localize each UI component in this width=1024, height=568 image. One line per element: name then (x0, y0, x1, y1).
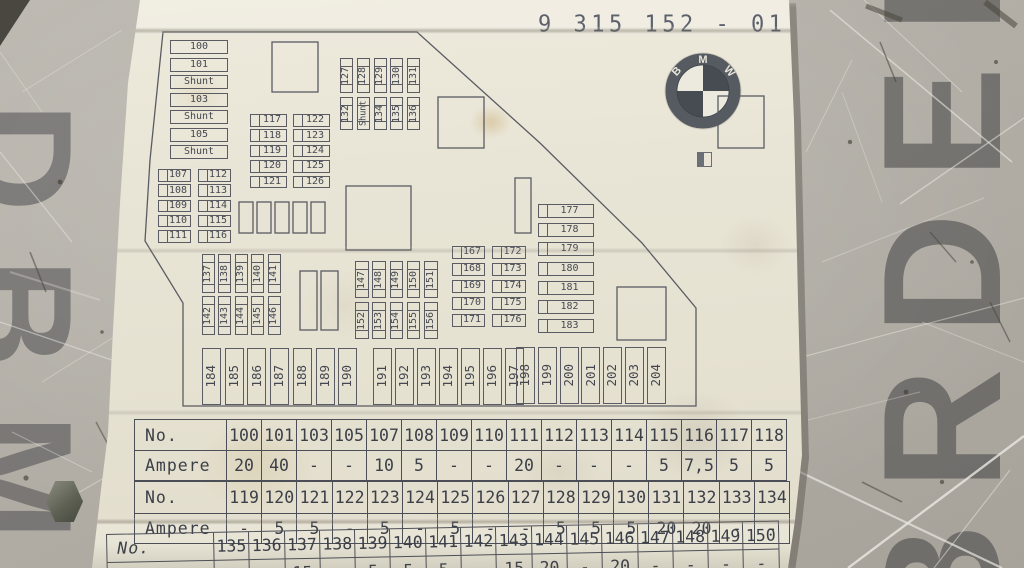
fuse-label: 137 (204, 264, 214, 282)
fuse-subcell (391, 289, 403, 297)
fuse-no-cell: 148 (672, 523, 708, 551)
fuse-label: 146 (269, 306, 279, 324)
fuse-no-cell: 111 (506, 420, 541, 450)
fuse-box: 195 (461, 348, 480, 405)
fuse-subcell (269, 297, 280, 305)
fuse-box: 196 (483, 348, 502, 405)
fuse-subcell (453, 281, 462, 292)
fuse-subcell (252, 326, 263, 334)
fuse-subcell (252, 297, 263, 305)
fuse-box: 136 (407, 97, 420, 130)
fuse-label: 203 (628, 364, 641, 387)
fuse-subcell (453, 264, 462, 275)
fuse-box: 146 (268, 296, 281, 335)
fuse-box: 141 (268, 254, 281, 293)
fuse-subcell (159, 185, 168, 196)
fuse-box: 126 (293, 176, 330, 189)
ampere-cell: 5 (646, 450, 681, 480)
fuse-box: 191 (373, 348, 392, 405)
fuse-label: 142 (204, 306, 214, 324)
fuse-box: 192 (395, 348, 414, 405)
fuse-subcell (159, 216, 168, 227)
fuse-label: 191 (376, 365, 389, 388)
fuse-subcell (294, 115, 303, 126)
fuse-subcell (294, 146, 303, 157)
fuse-subcell (199, 170, 208, 181)
fuse-label: 190 (341, 365, 354, 388)
fuse-label: 127 (342, 66, 352, 84)
fuse-label: 202 (606, 364, 619, 387)
no-row-header: No. (107, 533, 214, 562)
fuse-subcell (493, 298, 502, 309)
ampere-cell: 15 (284, 558, 320, 568)
fuse-label: 128 (358, 66, 368, 84)
relay-box (438, 97, 484, 148)
fuse-label: 183 (553, 321, 578, 331)
fuse-box: 193 (417, 348, 436, 405)
fuse-label: 140 (253, 264, 263, 282)
fuse-label: 198 (519, 364, 532, 387)
fuse-box: 131 (407, 58, 420, 93)
fuse-label: 201 (585, 364, 598, 387)
ampere-cell: - (471, 450, 506, 480)
fuse-label: 181 (553, 283, 578, 293)
fuse-subcell (373, 262, 385, 270)
fuse-box: 128 (357, 58, 370, 93)
connector-slot (311, 202, 325, 233)
fuse-box: 176 (492, 314, 526, 327)
fuse-label: 139 (236, 264, 246, 282)
fuse-box: 147 (355, 261, 369, 298)
fuse-box: 204 (647, 347, 666, 404)
fuse-no-cell: 134 (754, 482, 789, 513)
fuse-subcell (341, 84, 352, 92)
fuse-subcell (251, 115, 260, 126)
fuse-no-cell: 110 (471, 420, 506, 450)
fuse-label: 101 (190, 60, 208, 70)
fuse-no-cell: 120 (261, 482, 296, 513)
fuse-no-cell: 135 (213, 532, 249, 560)
ampere-cell: - (743, 549, 779, 568)
fuse-no-cell: 100 (226, 420, 261, 450)
fuse-subcell (539, 320, 548, 332)
fuse-label: 150 (409, 270, 419, 288)
fuse-box: 167 (452, 246, 485, 259)
fuse-subcell (425, 303, 437, 311)
fuse-subcell (251, 146, 260, 157)
fuse-label: Shunt (184, 77, 214, 87)
fuse-box: Shunt (170, 145, 228, 159)
fuse-subcell (425, 262, 437, 270)
fuse-box: 180 (538, 262, 594, 276)
fuse-subcell (539, 301, 548, 313)
fuse-subcell (408, 84, 419, 92)
fuse-box: 177 (538, 204, 594, 218)
fuse-label: 144 (236, 306, 246, 324)
fuse-label: 105 (190, 130, 208, 140)
ampere-cell: 5 (390, 556, 426, 568)
fuse-box: 118 (250, 129, 287, 142)
fuse-label: 132 (342, 104, 352, 122)
fuse-box: 171 (452, 314, 485, 327)
fuse-label: 185 (228, 365, 241, 388)
fuse-subcell (203, 297, 214, 305)
ampere-cell: 5 (751, 450, 786, 480)
connector-slot (275, 202, 289, 233)
ampere-cell: 5 (401, 450, 436, 480)
fuse-no-cell: 125 (437, 482, 472, 513)
fuse-box: 108 (158, 184, 191, 197)
fuse-no-cell: 133 (719, 482, 754, 513)
fuse-label: 155 (409, 311, 419, 329)
fuse-label: 130 (392, 66, 402, 84)
fuse-subcell (269, 284, 280, 292)
fuse-box: 203 (625, 347, 644, 404)
fuse-subcell (408, 59, 419, 67)
fuse-no-cell: 124 (402, 482, 437, 513)
fuse-label: 138 (220, 264, 230, 282)
fuse-label: 192 (398, 365, 411, 388)
fuse-subcell (453, 247, 462, 258)
fuse-label: 189 (319, 365, 332, 388)
ampere-cell: 5 (425, 555, 461, 568)
fuse-box: 114 (198, 200, 231, 213)
fuse-subcell (539, 263, 548, 275)
fuse-no-cell: 119 (226, 482, 261, 513)
fuse-label: Shunt (359, 101, 368, 127)
fuse-no-cell: 129 (578, 482, 613, 513)
fuse-no-cell: 143 (495, 526, 531, 554)
ampere-cell: 20 (602, 551, 638, 568)
fuse-no-cell: 146 (601, 524, 637, 552)
relay-box (617, 287, 666, 340)
fuse-label: 134 (375, 104, 385, 122)
no-row-header: No. (135, 420, 226, 450)
fuse-box: 115 (198, 215, 231, 228)
fuse-box: 178 (538, 223, 594, 237)
fuse-subcell (425, 330, 437, 338)
fuse-box: 199 (538, 347, 557, 404)
fuse-label: 187 (273, 365, 286, 388)
fuse-label: 182 (553, 302, 578, 312)
fuse-box: 184 (202, 348, 221, 405)
ampere-cell: - (541, 450, 576, 480)
fuse-box: 170 (452, 297, 485, 310)
fuse-box: 105 (170, 128, 228, 142)
ampere-row-header: Ampere (108, 560, 215, 568)
fuse-box: 186 (247, 348, 266, 405)
fuse-label: 136 (409, 104, 419, 122)
fuse-label: 131 (409, 66, 419, 84)
fuse-label: 103 (190, 95, 208, 105)
fuse-box: 116 (198, 230, 231, 243)
fuse-label: Shunt (184, 147, 214, 157)
fuse-subcell (252, 284, 263, 292)
fuse-no-cell: 139 (354, 529, 390, 557)
fuse-subcell (356, 289, 368, 297)
relay-box (718, 96, 764, 148)
fuse-box: 101 (170, 58, 228, 72)
fuse-subcell (203, 326, 214, 334)
fuse-box: 135 (390, 97, 403, 130)
fuse-label: 149 (391, 270, 401, 288)
fuse-box: 113 (198, 184, 231, 197)
fuse-box: Shunt (170, 75, 228, 89)
fuse-box: 173 (492, 263, 526, 276)
fuse-box: 198 (516, 347, 535, 404)
fuse-box: 125 (293, 160, 330, 173)
ampere-cell: 20 (226, 450, 261, 480)
fuse-box: 189 (316, 348, 335, 405)
fuse-subcell (375, 84, 386, 92)
fuse-no-cell: 130 (613, 482, 648, 513)
fuse-label: 188 (296, 365, 309, 388)
fuse-box: 119 (250, 145, 287, 158)
fuse-no-cell: 144 (531, 526, 567, 554)
fuse-box: 124 (293, 145, 330, 158)
fuse-subcell (236, 297, 247, 305)
fuse-subcell (294, 130, 303, 141)
fuse-box: 107 (158, 169, 191, 182)
ampere-cell: - (576, 450, 611, 480)
fuse-subcell (294, 161, 303, 172)
ampere-cell: - (319, 557, 355, 568)
fuse-box: 134 (374, 97, 387, 130)
fuse-box: 169 (452, 280, 485, 293)
fuse-box: 154 (390, 302, 404, 339)
fuse-no-cell: 132 (683, 482, 718, 513)
fuse-subcell (493, 264, 502, 275)
fuse-box: 153 (372, 302, 386, 339)
fuse-label: 179 (553, 244, 578, 254)
fuse-subcell (269, 326, 280, 334)
fuse-no-cell: 150 (742, 522, 778, 550)
fuse-label: 200 (563, 364, 576, 387)
fuse-subcell (294, 177, 303, 188)
connector-slot (300, 271, 317, 330)
ampere-row-header: Ampere (135, 450, 226, 480)
fuse-no-cell: 105 (331, 420, 366, 450)
fuse-box: 140 (251, 254, 264, 293)
fuse-box: 122 (293, 114, 330, 127)
ampere-cell: - (296, 450, 331, 480)
fuse-subcell (199, 216, 208, 227)
fuse-no-cell: 127 (508, 482, 543, 513)
fuse-subcell (539, 282, 548, 294)
fuse-subcell (159, 170, 168, 181)
connector-slot (293, 202, 307, 233)
fuse-box: 111 (158, 230, 191, 243)
amperage-table-section: No.1001011031051071081091101111121131141… (134, 419, 787, 481)
fuse-box: 148 (372, 261, 386, 298)
fuse-label: 186 (251, 365, 264, 388)
ampere-cell: - (637, 551, 673, 568)
fuse-label: 141 (269, 264, 279, 282)
fuse-box: 142 (202, 296, 215, 335)
fuse-subcell (391, 59, 402, 67)
fuse-box: 143 (218, 296, 231, 335)
fuse-no-cell: 141 (425, 528, 461, 556)
fuse-label: 143 (220, 306, 230, 324)
fuse-no-cell: 103 (296, 420, 331, 450)
fuse-subcell (408, 303, 420, 311)
fuse-label: 178 (553, 225, 578, 235)
fuse-subcell (252, 255, 263, 263)
ampere-cell: 5 (716, 450, 751, 480)
ampere-cell: - (461, 554, 497, 568)
fuse-no-cell: 122 (332, 482, 367, 513)
fuse-subcell (251, 130, 260, 141)
no-row-header: No. (135, 482, 226, 513)
fuse-subcell (251, 161, 260, 172)
fuse-box: 156 (424, 302, 438, 339)
fuse-subcell (199, 231, 208, 242)
fuse-no-cell: 131 (648, 482, 683, 513)
fuse-subcell (199, 201, 208, 212)
fuse-subcell (356, 262, 368, 270)
fuse-box: 175 (492, 297, 526, 310)
connector-slot (321, 271, 338, 330)
fuse-no-cell: 112 (541, 420, 576, 450)
fuse-box: 151 (424, 261, 438, 298)
fuse-subcell (391, 330, 403, 338)
relay-box (346, 186, 411, 250)
fuse-no-cell: 142 (460, 527, 496, 555)
fuse-label: 153 (374, 311, 384, 329)
fuse-box: 100 (170, 40, 228, 54)
fuse-no-cell: 147 (636, 524, 672, 552)
fuse-box: 174 (492, 280, 526, 293)
fuse-subcell (373, 289, 385, 297)
fuse-box: 121 (250, 176, 287, 189)
fuse-subcell (356, 303, 368, 311)
fuse-subcell (453, 298, 462, 309)
fuse-subcell (219, 284, 230, 292)
ampere-cell: - (566, 552, 602, 568)
fuse-subcell (539, 205, 548, 217)
fuse-box: Shunt (357, 97, 370, 130)
fuse-subcell (203, 255, 214, 263)
fuse-subcell (341, 59, 352, 67)
fuse-subcell (199, 185, 208, 196)
fuse-subcell (251, 177, 260, 188)
fuse-box: 150 (407, 261, 421, 298)
fuse-box: 120 (250, 160, 287, 173)
fuse-box: 190 (338, 348, 357, 405)
fuse-subcell (356, 330, 368, 338)
connector-slot (515, 178, 531, 233)
fuse-box: 194 (439, 348, 458, 405)
fuse-no-cell: 108 (401, 420, 436, 450)
fuse-label: 194 (442, 365, 455, 388)
ampere-cell: 10 (366, 450, 401, 480)
fuse-box: 132 (340, 97, 353, 130)
fuse-label: 148 (374, 270, 384, 288)
fuse-subcell (236, 284, 247, 292)
fuse-box: 172 (492, 246, 526, 259)
fuse-subcell (408, 289, 420, 297)
fuse-box: 110 (158, 215, 191, 228)
fuse-subcell (391, 303, 403, 311)
fuse-no-cell: 109 (436, 420, 471, 450)
ampere-cell: - (436, 450, 471, 480)
fuse-label: 129 (375, 66, 385, 84)
fuse-no-cell: 126 (472, 482, 507, 513)
fuse-box: 127 (340, 58, 353, 93)
fuse-box: 183 (538, 319, 594, 333)
fuse-subcell (236, 255, 247, 263)
fuse-no-cell: 145 (566, 525, 602, 553)
ampere-cell: - (214, 559, 250, 568)
fuse-box: 145 (251, 296, 264, 335)
fuse-box: 139 (235, 254, 248, 293)
connector-slot (239, 202, 253, 233)
fuse-subcell (203, 284, 214, 292)
fuse-subcell (425, 289, 437, 297)
fuse-box: Shunt (170, 110, 228, 124)
fuse-no-cell: 107 (366, 420, 401, 450)
fuse-label: 193 (420, 365, 433, 388)
ampere-cell: 15 (496, 553, 532, 568)
fuse-box: 103 (170, 93, 228, 107)
ampere-cell: - (331, 450, 366, 480)
fuse-subcell (219, 255, 230, 263)
fuse-subcell (375, 59, 386, 67)
fuse-label: 196 (486, 365, 499, 388)
fuse-subcell (236, 326, 247, 334)
fuse-label: 195 (464, 365, 477, 388)
fuse-no-cell: 101 (261, 420, 296, 450)
fuse-subcell (453, 315, 462, 326)
fuse-box: 123 (293, 129, 330, 142)
ampere-cell: 20 (531, 553, 567, 568)
fuse-label: 199 (541, 364, 554, 387)
fuse-subcell (358, 84, 369, 92)
fuse-subcell (358, 59, 369, 67)
fuse-no-cell: 128 (543, 482, 578, 513)
relay-box (272, 42, 318, 92)
fuse-box: 144 (235, 296, 248, 335)
fuse-no-cell: 118 (751, 420, 786, 450)
fuse-box: 179 (538, 242, 594, 256)
ampere-cell: - (249, 558, 285, 568)
fuse-subcell (269, 255, 280, 263)
fuse-box: 187 (270, 348, 289, 405)
fuse-no-cell: 113 (576, 420, 611, 450)
ampere-cell: 20 (506, 450, 541, 480)
fuse-box: 137 (202, 254, 215, 293)
fuse-label: 147 (357, 270, 367, 288)
fuse-subcell (159, 201, 168, 212)
fuse-box: 109 (158, 200, 191, 213)
fuse-label: 135 (392, 104, 402, 122)
connector-slot (257, 202, 271, 233)
fuse-no-cell: 137 (284, 531, 320, 559)
fuse-box: 155 (407, 302, 421, 339)
fuse-label: 151 (426, 270, 436, 288)
fuse-label: Shunt (184, 112, 214, 122)
fuse-box: 182 (538, 300, 594, 314)
fuse-box: 181 (538, 281, 594, 295)
fuse-box: 112 (198, 169, 231, 182)
fuse-label: 152 (357, 311, 367, 329)
ampere-cell: - (672, 550, 708, 568)
fuse-no-cell: 121 (296, 482, 331, 513)
fuse-label: 204 (650, 364, 663, 387)
fuse-subcell (373, 330, 385, 338)
fuse-box: 202 (603, 347, 622, 404)
fuse-no-cell: 123 (367, 482, 402, 513)
